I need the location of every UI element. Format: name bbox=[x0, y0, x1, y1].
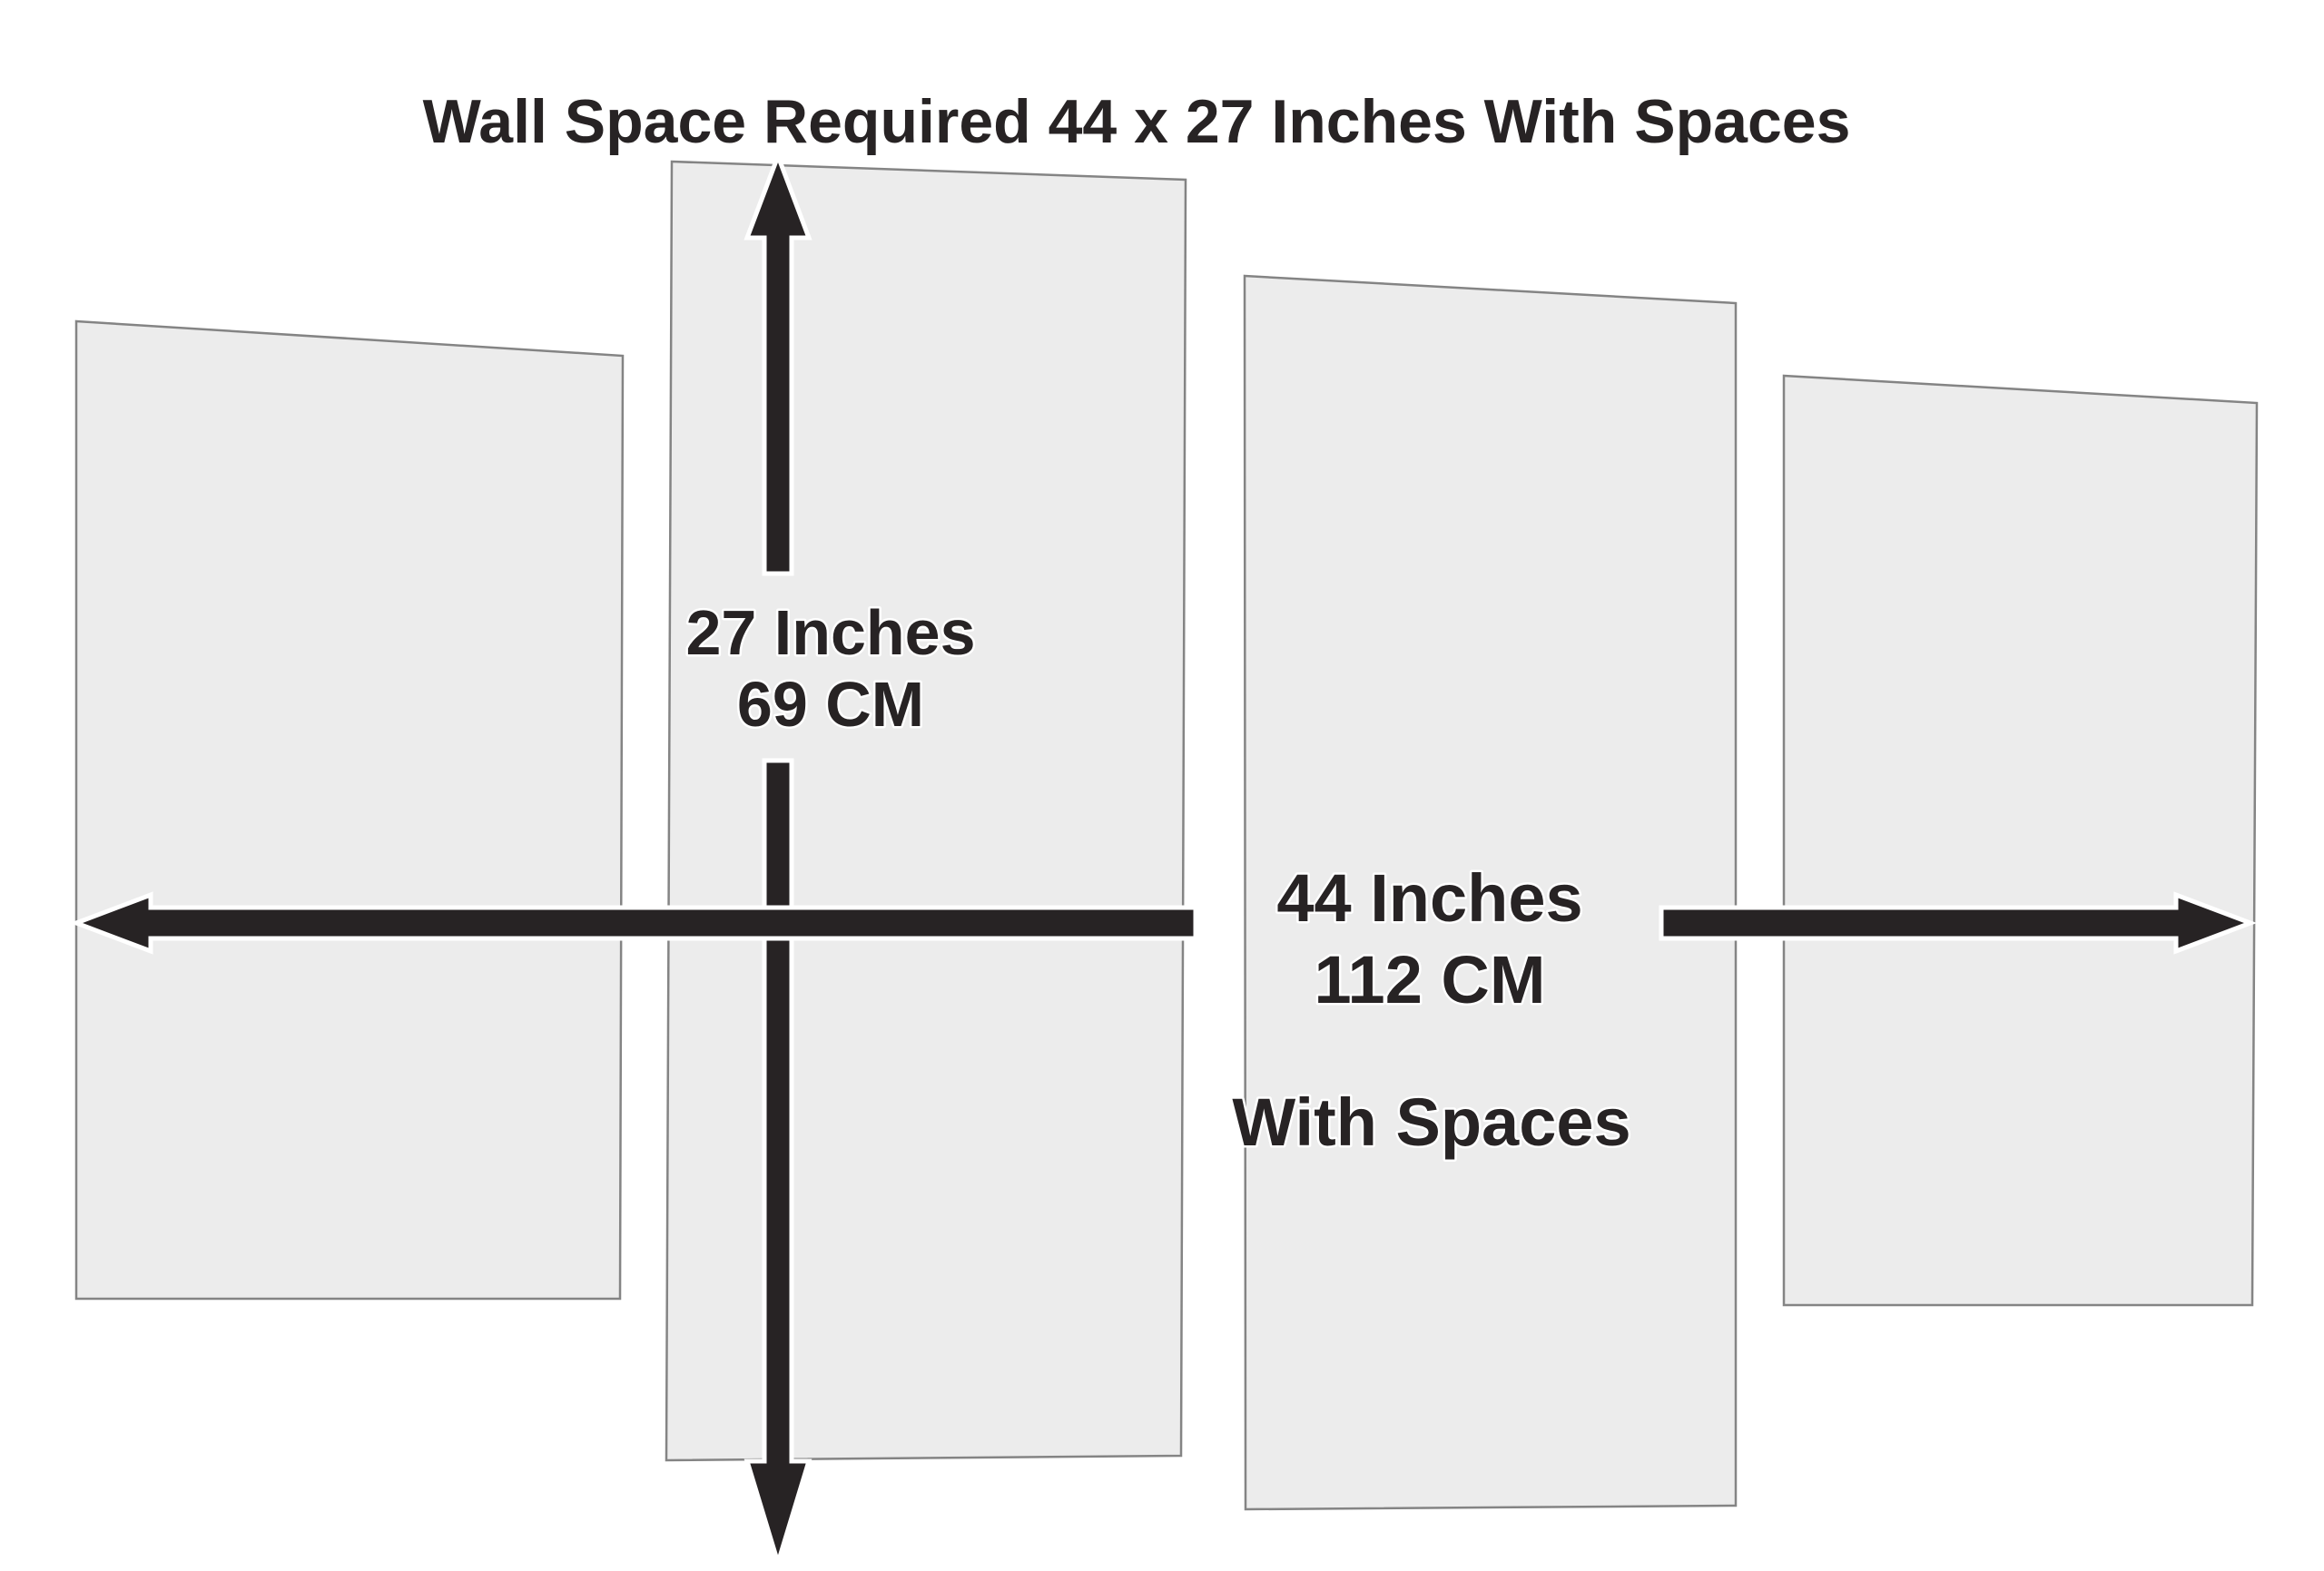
vertical-dimension-inches-label: 27 Inches bbox=[685, 597, 975, 668]
canvas-panel-1 bbox=[76, 321, 623, 1299]
horizontal-dimension-cm-label: 112 CM bbox=[1314, 942, 1545, 1017]
canvas-panel-2 bbox=[666, 162, 1186, 1460]
diagram-title: Wall Space Required 44 x 27 Inches With … bbox=[423, 87, 1851, 156]
vertical-dimension-cm-label: 69 CM bbox=[737, 669, 924, 740]
horizontal-dimension-inches-label: 44 Inches bbox=[1276, 860, 1582, 936]
wall-space-diagram: Wall Space Required 44 x 27 Inches With … bbox=[0, 0, 2324, 1571]
horizontal-dimension-spaces-note: With Spaces bbox=[1232, 1085, 1630, 1160]
canvas-panel-4 bbox=[1784, 376, 2257, 1305]
